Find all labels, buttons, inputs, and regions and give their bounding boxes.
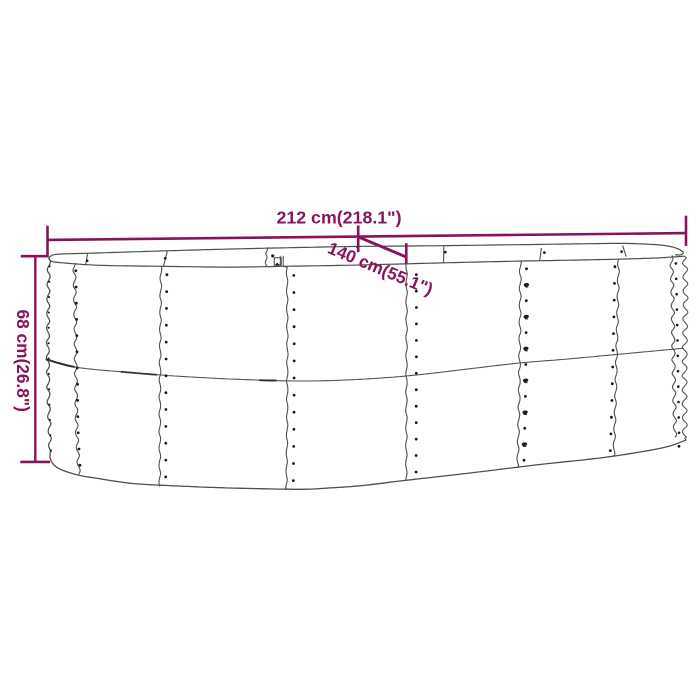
svg-text:68 cm(26.8"): 68 cm(26.8") [13, 310, 33, 412]
svg-text:212 cm(218.1"): 212 cm(218.1") [276, 208, 401, 228]
